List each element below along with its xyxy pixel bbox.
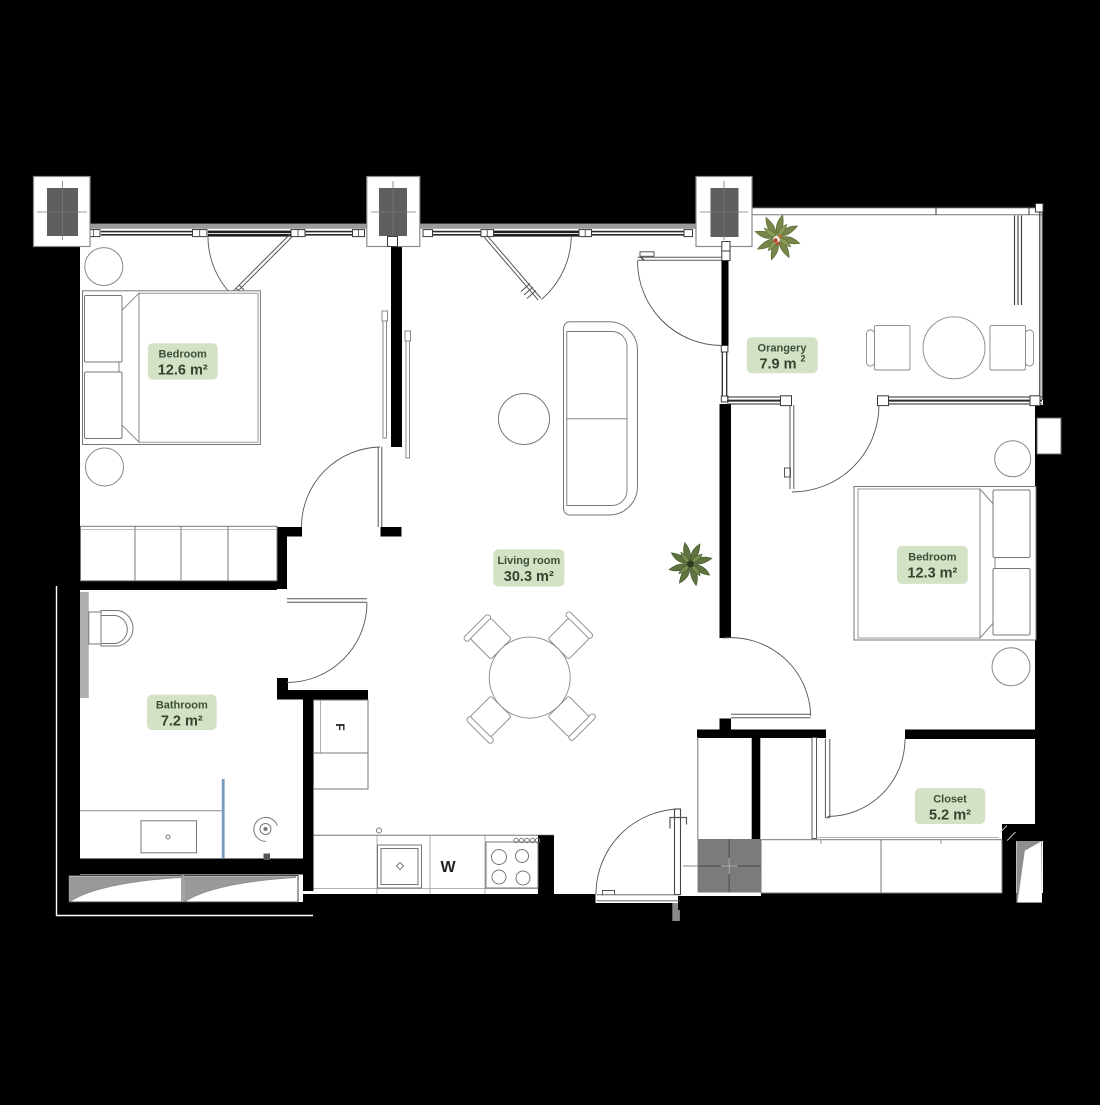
svg-text:Bedroom: Bedroom [908,552,957,564]
svg-text:12.3 m²: 12.3 m² [907,566,957,582]
svg-text:5.2 m²: 5.2 m² [929,808,971,824]
svg-text:Closet: Closet [933,794,967,806]
svg-text:Bedroom: Bedroom [159,349,208,361]
svg-text:7.2 m²: 7.2 m² [161,714,203,730]
svg-text:7.9 m: 7.9 m [759,357,796,373]
svg-text:30.3 m²: 30.3 m² [504,569,554,585]
svg-text:W: W [440,859,456,876]
svg-text:2: 2 [800,354,805,364]
svg-text:12.6 m²: 12.6 m² [158,363,208,379]
svg-text:F: F [333,723,347,730]
svg-text:Bathroom: Bathroom [156,700,208,712]
svg-text:Living room: Living room [497,555,560,567]
